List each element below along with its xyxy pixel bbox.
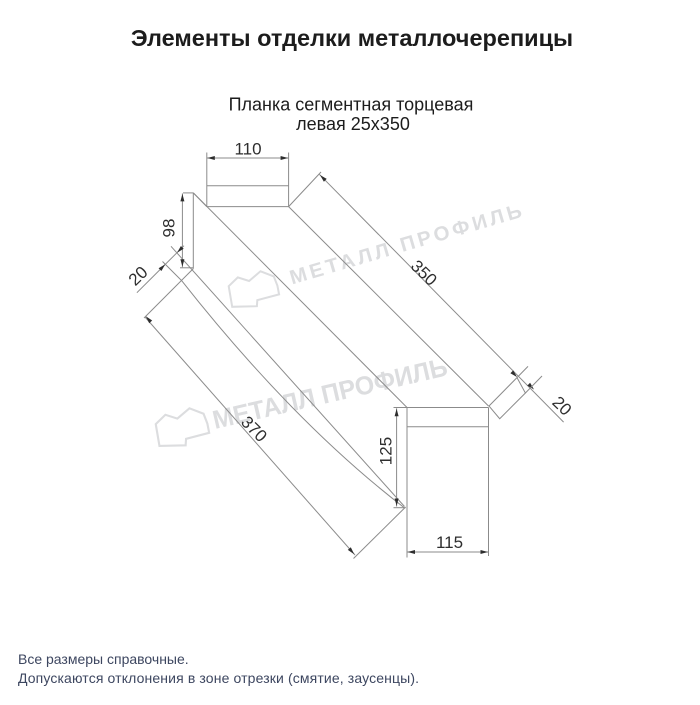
svg-text:левая 25х350: левая 25х350 xyxy=(296,114,410,134)
svg-text:Элементы отделки металлочерепи: Элементы отделки металлочерепицы xyxy=(131,25,573,51)
svg-text:Планка сегментная торцевая: Планка сегментная торцевая xyxy=(229,95,474,115)
svg-text:98: 98 xyxy=(160,219,179,238)
svg-text:Допускаются отклонения в зоне: Допускаются отклонения в зоне отрезки (с… xyxy=(18,670,419,686)
svg-text:110: 110 xyxy=(234,140,261,159)
svg-text:Все размеры справочные.: Все размеры справочные. xyxy=(18,651,189,667)
svg-text:115: 115 xyxy=(436,533,463,552)
svg-text:125: 125 xyxy=(377,437,396,465)
